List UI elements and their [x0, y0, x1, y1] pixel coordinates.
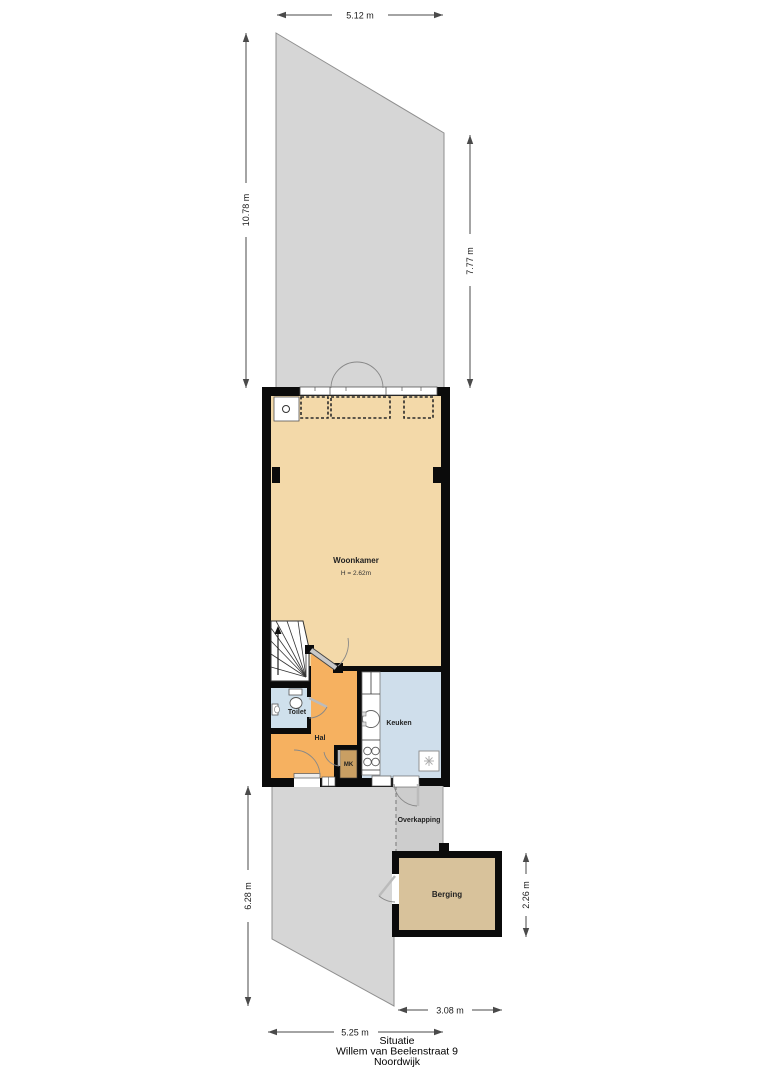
appliance-icon [424, 756, 434, 766]
dim-text-lower-garden-height: 6.28 m [243, 882, 253, 910]
window-glass [300, 387, 437, 395]
sink-tap-icon [362, 722, 366, 726]
overkapping-label: Overkapping [398, 817, 441, 824]
situatie-floorplan-svg: Woonkamer H = 2.62m Toilet Hal Keuken MK… [0, 0, 770, 1089]
keuken-label: Keuken [386, 720, 411, 727]
dimension-berging-depth-part [523, 928, 529, 937]
kitchen-rear-window [372, 776, 391, 786]
dimension-garden-right-height-part [467, 135, 473, 144]
woonkamer-height-note: H = 2.62m [341, 570, 371, 577]
toilet-sink-basin-icon [275, 706, 280, 713]
floorplan-page: Woonkamer H = 2.62m Toilet Hal Keuken MK… [0, 0, 770, 1089]
corner-fixture [274, 397, 299, 421]
dimension-garden-right-height: 7.77 m [464, 135, 477, 388]
hal-label: Hal [315, 735, 326, 742]
wall-nub-left [272, 467, 280, 483]
plan-city: Noordwijk [374, 1056, 421, 1068]
meterkast-wall-top [334, 745, 357, 750]
berging-label: Berging [432, 890, 462, 899]
back-door-opening [393, 776, 419, 787]
dim-text-garden-left-height: 10.78 m [241, 194, 251, 227]
dimension-berging-width-part [493, 1007, 502, 1013]
dimension-garden-top-width-part [277, 12, 286, 18]
toilet-label: Toilet [288, 709, 307, 716]
title-block: Situatie Willem van Beelenstraat 9 Noord… [336, 1035, 458, 1068]
garden-upper [276, 33, 444, 388]
dimension-garden-left-height: 10.78 m [240, 33, 253, 388]
dimension-garden-top-width-part [434, 12, 443, 18]
toilet-bowl-icon [290, 698, 302, 709]
dimension-berging-depth: 2.26 m [520, 853, 533, 937]
dimension-berging-depth-part [523, 853, 529, 862]
toilet-tank-icon [289, 689, 302, 695]
woonkamer-label: Woonkamer [333, 556, 379, 565]
dim-text-berging-depth: 2.26 m [521, 881, 531, 909]
sink-tap-icon [362, 712, 366, 716]
dimension-garden-left-height-part [243, 33, 249, 42]
dimension-lower-garden-height-part [245, 786, 251, 795]
dimension-berging-width-part [398, 1007, 407, 1013]
kitchen-counter [362, 672, 380, 775]
meterkast-label: MK [344, 762, 354, 768]
dim-text-garden-top-width: 5.12 m [346, 11, 374, 21]
dimension-lower-garden-width: 5.25 m [268, 1026, 443, 1038]
front-window-band [300, 387, 437, 395]
kitchen-appliance [419, 751, 439, 771]
dimension-garden-right-height-part [467, 379, 473, 388]
fixture-box [274, 397, 299, 421]
dimension-garden-top-width: 5.12 m [277, 8, 443, 21]
dim-text-garden-right-height: 7.77 m [465, 247, 475, 275]
front-door-slab [294, 774, 320, 779]
dimension-garden-left-height-part [243, 379, 249, 388]
dimension-lower-garden-height-part [245, 997, 251, 1006]
dimension-lower-garden-width-part [268, 1029, 277, 1035]
stairs [271, 621, 309, 681]
dimension-berging-width: 3.08 m [398, 1004, 502, 1016]
dim-text-berging-width: 3.08 m [436, 1006, 464, 1016]
dimension-lower-garden-width-part [434, 1029, 443, 1035]
wall-nub-right [433, 467, 441, 483]
dimension-lower-garden-height: 6.28 m [242, 786, 255, 1006]
dim-text-lower-garden-width: 5.25 m [341, 1028, 369, 1038]
